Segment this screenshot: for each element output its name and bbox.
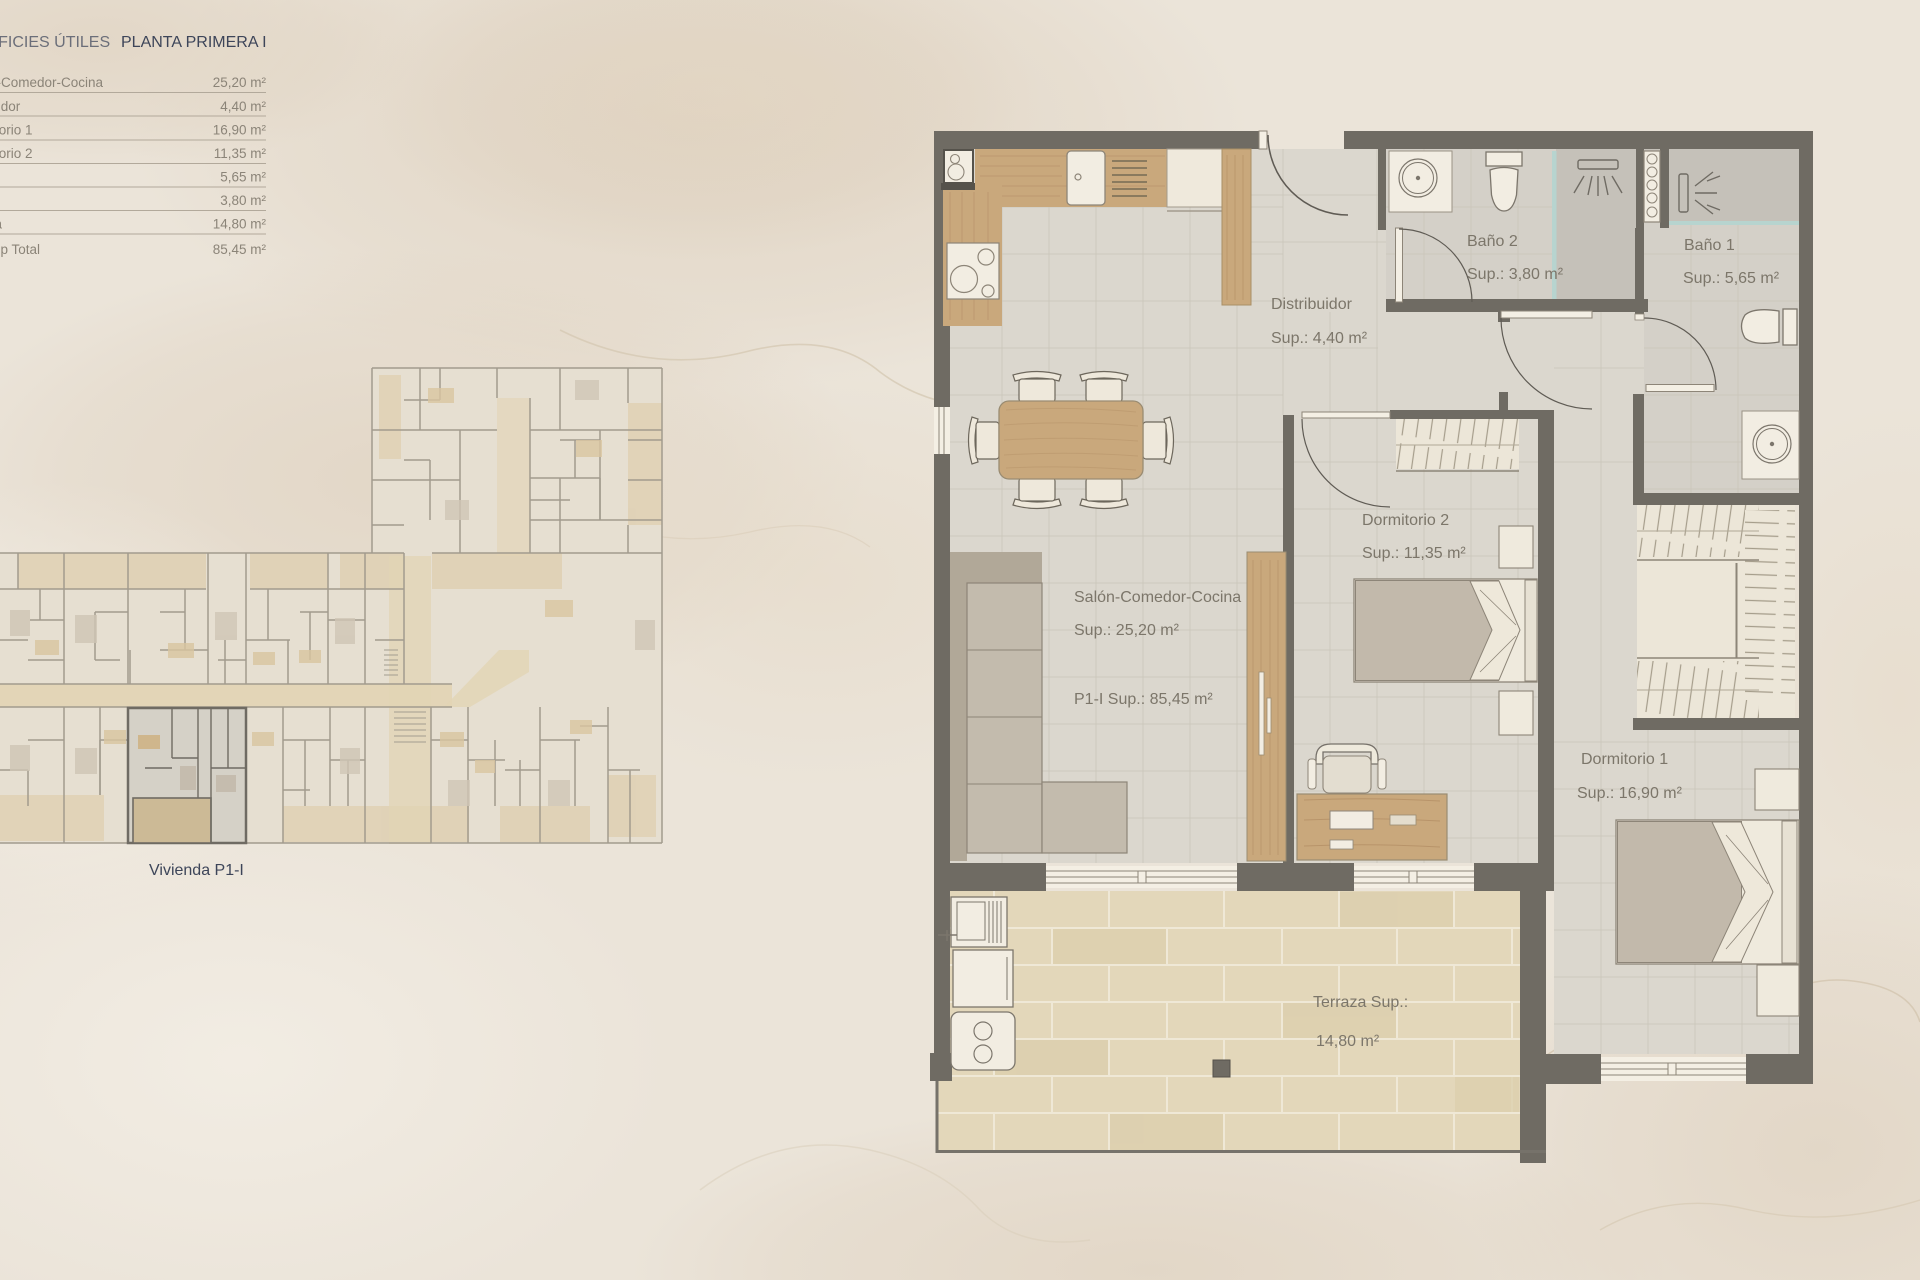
svg-text:Sup.: 16,90 m²: Sup.: 16,90 m² [1577, 785, 1683, 802]
svg-text:Sup.: 5,65 m²: Sup.: 5,65 m² [1683, 270, 1780, 287]
svg-text:Sup.: 3,80 m²: Sup.: 3,80 m² [1467, 266, 1564, 283]
svg-text:16,90 m²: 16,90 m² [213, 123, 267, 138]
svg-text:PLANTA PRIMERA I: PLANTA PRIMERA I [121, 34, 267, 51]
svg-text:SUPERFICIES ÚTILES: SUPERFICIES ÚTILES [0, 32, 110, 51]
svg-text:Salón-Comedor-Cocina: Salón-Comedor-Cocina [1074, 589, 1241, 606]
svg-text:Sup.: 4,40 m²: Sup.: 4,40 m² [1271, 330, 1368, 347]
svg-text:14,80 m²: 14,80 m² [213, 217, 267, 232]
svg-text:Sup Total: Sup Total [0, 242, 40, 257]
svg-text:11,35 m²: 11,35 m² [214, 146, 267, 161]
svg-text:Distribuidor: Distribuidor [1271, 296, 1353, 313]
svg-text:P1-I Sup.: 85,45 m²: P1-I Sup.: 85,45 m² [1074, 691, 1213, 708]
svg-text:Baño 1: Baño 1 [1684, 237, 1735, 254]
svg-text:Terraza Sup.:: Terraza Sup.: [1313, 994, 1408, 1011]
svg-text:4,40 m²: 4,40 m² [220, 99, 266, 114]
svg-text:Baño 2: Baño 2 [1467, 233, 1518, 250]
svg-text:Sup.: 11,35 m²: Sup.: 11,35 m² [1362, 545, 1466, 562]
svg-text:25,20 m²: 25,20 m² [213, 75, 267, 90]
svg-text:Dormitorio 1: Dormitorio 1 [0, 123, 33, 138]
svg-text:85,45 m²: 85,45 m² [213, 242, 267, 257]
svg-text:5,65 m²: 5,65 m² [220, 170, 266, 185]
svg-text:Salón-Comedor-Cocina: Salón-Comedor-Cocina [0, 75, 104, 90]
svg-text:14,80 m²: 14,80 m² [1316, 1033, 1380, 1050]
svg-text:Vivienda P1-I: Vivienda P1-I [149, 862, 244, 879]
svg-text:3,80 m²: 3,80 m² [220, 193, 266, 208]
svg-text:Distribuidor: Distribuidor [0, 99, 21, 114]
svg-text:Dormitorio 2: Dormitorio 2 [1362, 512, 1449, 529]
svg-text:Sup.: 25,20 m²: Sup.: 25,20 m² [1074, 622, 1180, 639]
svg-text:Dormitorio 1: Dormitorio 1 [1581, 751, 1668, 768]
svg-text:Dormitorio 2: Dormitorio 2 [0, 146, 33, 161]
